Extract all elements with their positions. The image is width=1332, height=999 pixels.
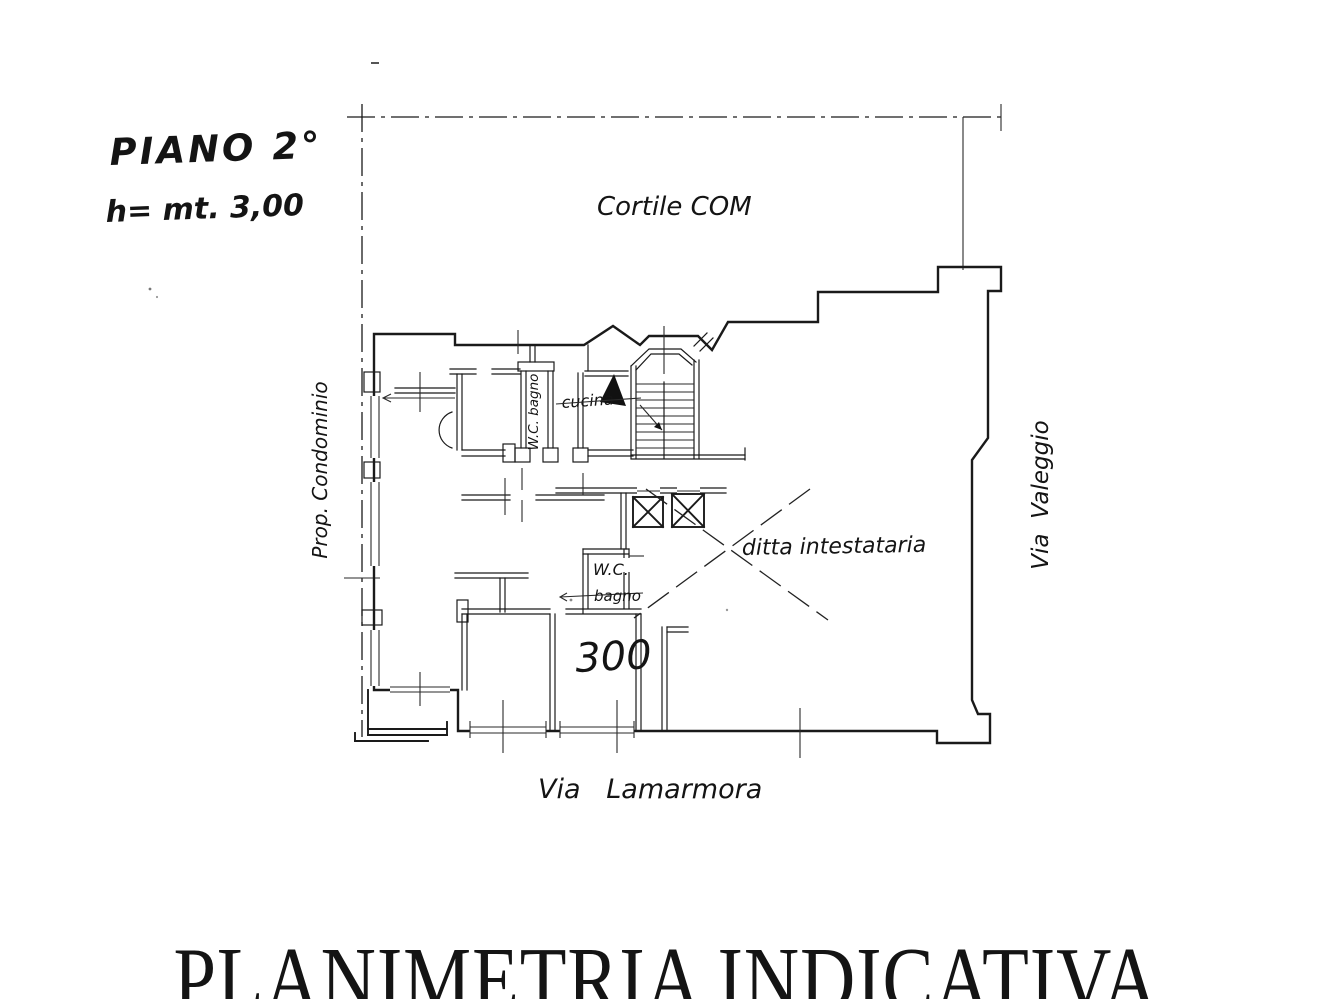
building-outline: [355, 267, 1001, 743]
plan-caption: PLANIMETRIA INDICATIVA: [173, 930, 1158, 999]
street-right-label: Via Valeggio: [1028, 420, 1054, 569]
kitchen-label-group: cucina: [556, 389, 641, 412]
height-label: h= mt. 3,00: [105, 188, 305, 230]
floor-plan-drawing: PIANO 2° h= mt. 3,00 Cortile COM Prop. C…: [0, 0, 1332, 999]
stair-steps: [636, 384, 694, 448]
left-boundary-label: Prop. Condominio: [308, 381, 332, 558]
balcony-outline: [355, 690, 447, 741]
room-number-label: 300: [574, 632, 653, 682]
staircase: [631, 326, 745, 460]
tenant-label: ditta intestataria: [742, 533, 927, 561]
bagno-center-label: bagno: [594, 587, 641, 605]
scanned-floor-plan-page: PIANO 2° h= mt. 3,00 Cortile COM Prop. C…: [0, 0, 1332, 999]
street-bottom-label: Via Lamarmora: [538, 774, 762, 805]
courtyard-label: Cortile COM: [597, 192, 752, 222]
middle-partitions: [455, 468, 604, 612]
wc-center-label: W.C.: [593, 560, 629, 579]
door-swing-arc: [439, 412, 452, 448]
floor-label: PIANO 2°: [109, 124, 323, 174]
elevator-shaft-1: [633, 497, 663, 527]
entry-and-room-upper-left: [383, 330, 520, 462]
wc-bagno-strip-label: W.C. bagno: [526, 374, 542, 451]
left-facade-windows: [362, 372, 382, 686]
